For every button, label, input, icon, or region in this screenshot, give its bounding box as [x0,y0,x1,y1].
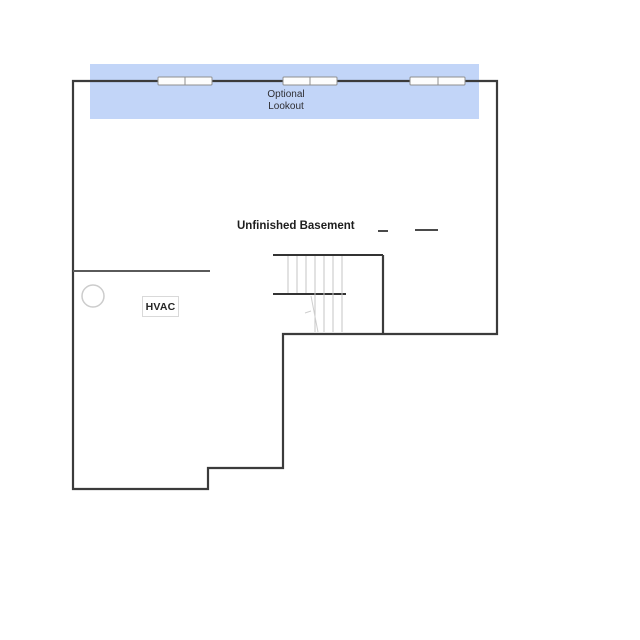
window-symbol-left [158,77,212,85]
optional-lookout-line2: Lookout [236,101,336,113]
window-symbol-right [410,77,465,85]
hvac-label-box: HVAC [142,296,179,317]
hvac-label: HVAC [146,301,176,313]
sump-pit-circle [82,285,104,307]
optional-lookout-label: Optional Lookout [236,89,336,112]
basement-outline-wall [73,81,497,489]
optional-lookout-line1: Optional [236,89,336,101]
window-symbol-center [283,77,337,85]
room-label: Unfinished Basement [237,220,355,232]
stair-break-tick [305,311,311,313]
floor-plan: Optional Lookout Unfinished Basement HVA… [0,0,640,640]
